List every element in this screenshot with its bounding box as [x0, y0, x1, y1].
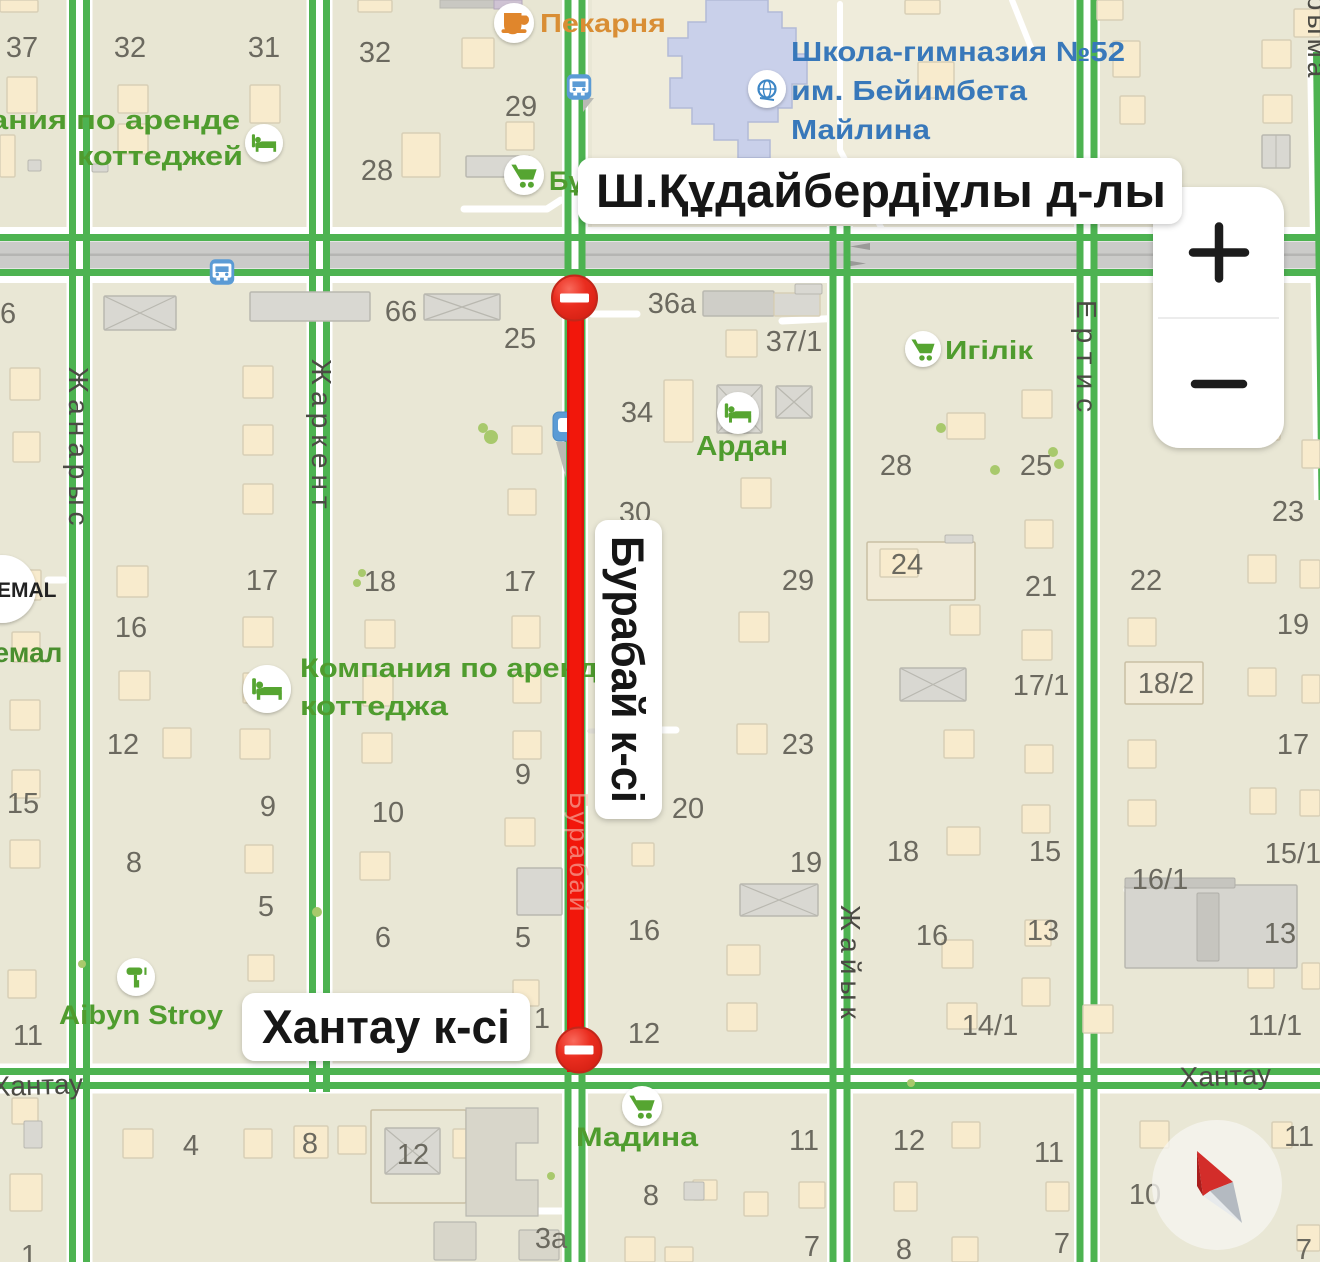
svg-text:Ертис: Ертис [1071, 300, 1102, 421]
svg-text:19: 19 [790, 847, 822, 879]
svg-text:29: 29 [782, 565, 814, 597]
svg-text:1: 1 [534, 1003, 550, 1035]
svg-text:15: 15 [7, 788, 39, 820]
svg-text:Бурабай: Бурабай [564, 792, 594, 914]
svg-text:Хантау: Хантау [0, 1068, 84, 1102]
svg-text:Бурабай к-сі: Бурабай к-сі [602, 536, 653, 803]
svg-text:3а: 3а [535, 1223, 568, 1255]
svg-text:25: 25 [1020, 450, 1052, 482]
svg-text:23: 23 [1272, 496, 1304, 528]
svg-text:Жанарыс: Жанарыс [63, 367, 94, 531]
svg-text:66: 66 [385, 296, 417, 328]
svg-text:EMAL: EMAL [0, 579, 57, 602]
svg-text:13: 13 [1264, 918, 1296, 950]
svg-text:15: 15 [1029, 836, 1061, 868]
svg-text:8: 8 [896, 1234, 912, 1262]
svg-text:17: 17 [1277, 729, 1309, 761]
svg-text:12: 12 [397, 1139, 429, 1171]
svg-text:Пекарня: Пекарня [540, 8, 666, 38]
svg-text:12: 12 [107, 729, 139, 761]
svg-text:Ардан: Ардан [696, 430, 788, 461]
svg-text:5: 5 [515, 922, 531, 954]
svg-text:4: 4 [183, 1130, 199, 1162]
svg-text:17: 17 [504, 566, 536, 598]
svg-text:11/1: 11/1 [1248, 1010, 1302, 1042]
svg-text:им. Бейимбета: им. Бейимбета [791, 75, 1027, 106]
svg-text:23: 23 [782, 729, 814, 761]
svg-text:32: 32 [359, 37, 391, 69]
svg-text:22: 22 [1130, 565, 1162, 597]
svg-text:Мадина: Мадина [576, 1122, 699, 1152]
svg-text:34: 34 [621, 397, 653, 429]
svg-text:16: 16 [628, 915, 660, 947]
svg-text:Ырыма: Ырыма [1302, 0, 1320, 81]
svg-text:28: 28 [880, 450, 912, 482]
svg-text:Ш.Құдайбердіұлы д-лы: Ш.Құдайбердіұлы д-лы [596, 164, 1166, 217]
svg-text:18: 18 [887, 836, 919, 868]
svg-text:Aibyn Stroy: Aibyn Stroy [59, 1000, 223, 1030]
svg-text:16: 16 [916, 920, 948, 952]
svg-text:37: 37 [6, 32, 38, 64]
svg-text:7: 7 [1296, 1234, 1312, 1262]
svg-text:11: 11 [13, 1020, 43, 1052]
svg-text:ания по аренде: ания по аренде [0, 105, 240, 135]
svg-text:17/1: 17/1 [1013, 670, 1069, 702]
svg-text:Жаркент: Жаркент [306, 359, 337, 515]
svg-text:9: 9 [515, 759, 531, 791]
svg-text:29: 29 [505, 91, 537, 123]
svg-text:13: 13 [1027, 915, 1059, 947]
svg-text:7: 7 [1054, 1228, 1070, 1260]
svg-text:Жайык: Жайык [835, 905, 866, 1025]
svg-text:Игілік: Игілік [945, 335, 1034, 365]
svg-text:10: 10 [372, 797, 404, 829]
svg-text:37/1: 37/1 [766, 326, 822, 358]
svg-text:Школа-гимназия №52: Школа-гимназия №52 [791, 36, 1125, 67]
svg-text:11: 11 [1034, 1137, 1064, 1169]
svg-text:8: 8 [126, 847, 142, 879]
svg-text:18: 18 [364, 566, 396, 598]
svg-text:17: 17 [246, 565, 278, 597]
svg-text:32: 32 [114, 32, 146, 64]
svg-text:11: 11 [789, 1125, 819, 1157]
svg-text:12: 12 [893, 1125, 925, 1157]
svg-text:20: 20 [672, 793, 704, 825]
svg-text:7: 7 [804, 1231, 820, 1262]
svg-text:16: 16 [115, 612, 147, 644]
svg-text:6: 6 [0, 298, 16, 330]
svg-text:36а: 36а [648, 288, 697, 320]
svg-text:16/1: 16/1 [1132, 864, 1188, 896]
svg-text:8: 8 [302, 1128, 318, 1160]
svg-text:12: 12 [628, 1018, 660, 1050]
svg-text:емал: емал [0, 637, 62, 668]
svg-text:24: 24 [891, 549, 923, 581]
svg-text:Майлина: Майлина [791, 114, 930, 145]
svg-text:6: 6 [375, 922, 391, 954]
svg-text:Хантау к-сі: Хантау к-сі [262, 1000, 510, 1053]
svg-text:коттеджа: коттеджа [300, 691, 449, 721]
svg-text:1: 1 [21, 1240, 37, 1262]
svg-text:25: 25 [504, 323, 536, 355]
svg-text:9: 9 [260, 791, 276, 823]
svg-text:19: 19 [1277, 609, 1309, 641]
svg-text:31: 31 [248, 32, 280, 64]
svg-text:11: 11 [1284, 1121, 1314, 1153]
svg-text:коттеджей: коттеджей [77, 141, 243, 171]
svg-text:15/1: 15/1 [1265, 838, 1320, 870]
svg-text:14/1: 14/1 [962, 1010, 1018, 1042]
svg-text:5: 5 [258, 891, 274, 923]
svg-text:18/2: 18/2 [1138, 668, 1194, 700]
svg-text:28: 28 [361, 155, 393, 187]
svg-text:21: 21 [1025, 571, 1057, 603]
svg-text:8: 8 [643, 1180, 659, 1212]
svg-text:Хантау: Хантау [1179, 1059, 1272, 1093]
